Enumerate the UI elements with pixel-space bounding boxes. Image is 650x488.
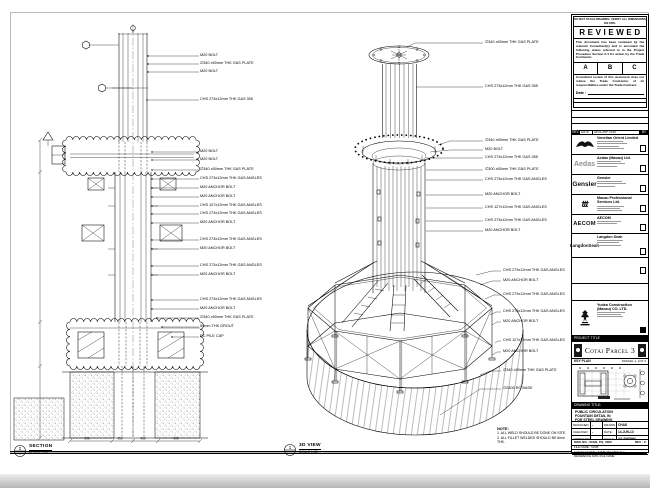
callout-label: M20 ANCHOR BOLT [200, 273, 235, 277]
company-checkbox [640, 248, 647, 255]
callout-label: CHS 273x12mm THK G&S ANGLES [503, 310, 565, 314]
company-name: Gensler [597, 176, 642, 180]
dim-value: 900 [173, 437, 179, 441]
callout-label: ∅340 x50mm THK G&S PLATE [485, 139, 539, 143]
3d-view-label: 3D VIEW [299, 443, 321, 450]
callout-label: M20 ANCHOR BOLT [503, 279, 538, 283]
dim-value: 450 [117, 437, 123, 441]
aedas-logo: Aedas [572, 155, 597, 174]
callout-label: ∅300 x50mm THK G&S PLATE [485, 168, 539, 172]
project-title: Cotai Parcel 3 [582, 346, 638, 355]
contractor-logo [572, 301, 597, 335]
callout-label: M20 BOLT [200, 150, 218, 154]
dwg-number-block: DWG NO : 515/B_PQ_0000 REV : C FILE NAME… [572, 440, 648, 452]
drawn-value: CHAD [617, 422, 648, 428]
collar [355, 135, 443, 165]
drawing-title: PUBLIC CIRCULATION FOUNTAIN DETAIL IN FO… [572, 409, 648, 422]
callout-label: ∅340 x50mm THK G&S PLATE [503, 369, 557, 373]
venetian-logo [572, 135, 597, 154]
cad-file-value: 515/B_PQ_0000.dwg [598, 450, 625, 454]
drawing-sheet: { "stamp": { "header_note": "DO NOT SCAL… [0, 0, 650, 488]
stamp-option-b: B [598, 63, 622, 74]
file-name-label: FILE NAME : [574, 445, 590, 449]
project-emblem-right [638, 344, 646, 357]
stamp-title: REVIEWED [574, 27, 646, 40]
callout-label: M20 ANCHOR BOLT [503, 320, 538, 324]
top-plate [369, 46, 429, 64]
signoff-table: DESIGNED - DRAWN CHAD CHECKED - DATE 14-… [572, 422, 648, 440]
reviewed-stamp: DO NOT SCALE DRAWING. VERIFY ALL DIMENSI… [572, 15, 648, 111]
callout-label: 50mm THK GROUT [200, 325, 234, 329]
callout-label: M20 BOLT [200, 70, 218, 74]
callout-label: CHS 273x12mm THK G&S ANGLES [200, 212, 262, 216]
dwg-no-label: DWG NO : [574, 440, 589, 444]
callout-label: ∅340 x50mm THK G&S PLATE [485, 41, 539, 45]
stamp-body: This document has been reviewed by the r… [574, 39, 646, 61]
note-line: 1. ALL WELD SHOULD BE DONE ON SITE. [497, 431, 569, 436]
callout-label: CHS 273x12mm THK G&S 355 [200, 98, 253, 102]
key-plan-label: KEY PLAN [572, 359, 591, 364]
callout-label: M20 ANCHOR BOLT [485, 229, 520, 233]
callout-label: CHS 273x12mm THK G&S ANGLES [200, 177, 262, 181]
aecom-logo: AECOM [572, 215, 597, 233]
callout-label: CHS 127x12mm THK G&S ANGLES [485, 206, 547, 210]
stamp-body-2: Consultant review of this document does … [574, 75, 646, 90]
callout-label: CHS 273x12mm THK G&S ANGLES [200, 298, 262, 302]
gensler-logo: Gensler [572, 175, 597, 194]
empty-row [572, 284, 648, 302]
revision-rows: REV DATE DESCRIPTION BY [572, 111, 648, 135]
callout-label: CHS 127x12mm THK G&S ANGLES [200, 204, 262, 208]
key-plan-drawing [572, 365, 646, 402]
callout-label: M20 ANCHOR BOLT [485, 193, 520, 197]
callout-label: M20 ANCHOR BOLT [200, 186, 235, 190]
callout-label: RC PILE CAP [200, 335, 224, 339]
callout-label: M20 ANCHOR BOLT [200, 307, 235, 311]
company-name: Venetian Orient Limited [597, 136, 642, 140]
bolt-flags [83, 41, 149, 92]
company-checkbox [640, 145, 647, 152]
checked-value: - [591, 429, 603, 435]
date-value: 14-JUN-13 [617, 429, 648, 435]
date-label: DATE [603, 429, 617, 435]
callout-label: M20 BOLT [200, 158, 218, 162]
stamp-header-note: DO NOT SCALE DRAWING. VERIFY ALL DIMENSI… [574, 17, 646, 27]
leader-lines [146, 55, 199, 337]
callout-label: M20 ANCHOR BOLT [200, 195, 235, 199]
callout-label: M20 ANCHOR BOLT [200, 221, 235, 225]
callout-label: CHS 273x12mm THK G&S ANGLES [200, 238, 262, 242]
contractor-name-line2: (Macau) CO. LTD. [597, 307, 642, 311]
callout-label: M20 ANCHOR BOLT [200, 247, 235, 251]
pile-cap [66, 319, 203, 370]
company-checkbox [640, 267, 647, 274]
company-row-gensler: Gensler Gensler [572, 175, 648, 195]
company-row-aecom: AECOM AECOM [572, 215, 648, 234]
callout-label: M20 ANCHOR BOLT [503, 350, 538, 354]
mps-logo: ttt [572, 195, 597, 214]
callout-label: ∅340 x50mm THK G&S PLATE [200, 316, 254, 320]
callout-label: CHS 273x12mm THK G&S 355 [485, 85, 538, 89]
callout-label: CHS 273x12mm THK G&S ANGLES [503, 269, 565, 273]
callout-label: M20 BOLT [485, 148, 503, 152]
stamp-date-label: Date : [576, 91, 587, 95]
callout-label: ∅2500 RC BASE [503, 387, 532, 391]
bottom-rule-2 [10, 453, 647, 454]
stamp-option-a: A [574, 63, 598, 74]
note-line: 2. ALL FILLET WELDED SHOULD BE 6mm THK. [497, 436, 569, 445]
company-row-venetian: Venetian Orient Limited [572, 135, 648, 155]
rev-value: C [644, 440, 646, 444]
title-block-panel: DO NOT SCALE DRAWING. VERIFY ALL DIMENSI… [571, 14, 649, 453]
callout-label: CHS 273x12mm THK G&S ANGLES [485, 219, 547, 223]
company-checkbox [640, 165, 647, 172]
project-title-row: Cotai Parcel 3 [572, 342, 648, 359]
project-emblem-left [574, 344, 582, 357]
callout-label: CHS 273x12mm THK G&S ANGLES [503, 293, 565, 297]
designed-value: - [591, 422, 603, 428]
dim-value: 900 [84, 437, 90, 441]
callout-label: M20 BOLT [200, 54, 218, 58]
foundation [14, 366, 208, 440]
company-name: AECOM [597, 216, 642, 220]
company-name: Macau Professional Services Ltd. [597, 196, 642, 205]
file-name-value: 515/B [591, 445, 598, 449]
callout-label: ∅340 x50mm THK G&S PLATE [200, 62, 254, 66]
notes-block: NOTE: 1. ALL WELD SHOULD BE DONE ON SITE… [497, 427, 569, 445]
designed-label: DESIGNED [572, 422, 591, 428]
callout-label: CHS 273x12mm THK G&S 355 [485, 156, 538, 160]
reference-label: REFERENCE DWG FILE NAME : [574, 454, 616, 458]
stamp-option-c: C [623, 63, 646, 74]
company-name: Aedas (Macau) Ltd. [597, 156, 642, 160]
callout-label: CHS 273x12mm THK G&S ANGLES [200, 264, 262, 268]
bowl-basin [43, 132, 199, 176]
company-row-mps: ttt Macau Professional Services Ltd. [572, 195, 648, 215]
checked-label: CHECKED [572, 429, 591, 435]
company-row-langdonseah: LangdonSeah Langdon Seah [572, 234, 648, 258]
dim-value: 450 [140, 437, 146, 441]
column-body [82, 172, 182, 322]
company-name: Langdon Seah [597, 235, 642, 239]
company-row-aedas: Aedas Aedas (Macau) Ltd. [572, 155, 648, 175]
rev-label: REV : [635, 440, 643, 444]
key-plan-right-label: PARCEL 1, LOT 2 [622, 359, 648, 364]
3d-view: ∅340 x50mm THK G&S PLATE CHS 273x12mm TH… [280, 25, 565, 445]
langdonseah-logo: LangdonSeah [572, 234, 597, 257]
callout-label: ∅340 x50mm THK G&S PLATE [200, 168, 254, 172]
stamp-date-line [588, 90, 644, 95]
company-checkbox [640, 185, 647, 192]
company-checkbox [640, 205, 647, 212]
svg-text:1: 1 [289, 445, 292, 450]
contractor-mark [640, 327, 647, 334]
empty-consultant-row [572, 258, 648, 284]
section-view-drawing: 900 450 450 900 [12, 20, 267, 445]
callout-label: CHS 273x12mm THK G&S ANGLES [485, 178, 547, 182]
dwg-no-value: 515/B_PQ_0000 [589, 440, 611, 444]
company-checkbox [640, 224, 647, 231]
page-bottom-shade [0, 474, 650, 488]
cad-file-label: CAD FILE NAME : [574, 450, 597, 454]
section-view: 900 450 450 900 M20 BOLT ∅340 x50mm THK … [12, 20, 267, 445]
contractor-row: Yudea Construction (Macau) CO. LTD. [572, 301, 648, 336]
bottom-rule [10, 451, 647, 452]
callout-label: CHS 127x12mm THK G&S ANGLES [503, 339, 565, 343]
key-plan [572, 365, 648, 403]
pipe-cluster [383, 64, 417, 138]
drawn-label: DRAWN [603, 422, 617, 428]
